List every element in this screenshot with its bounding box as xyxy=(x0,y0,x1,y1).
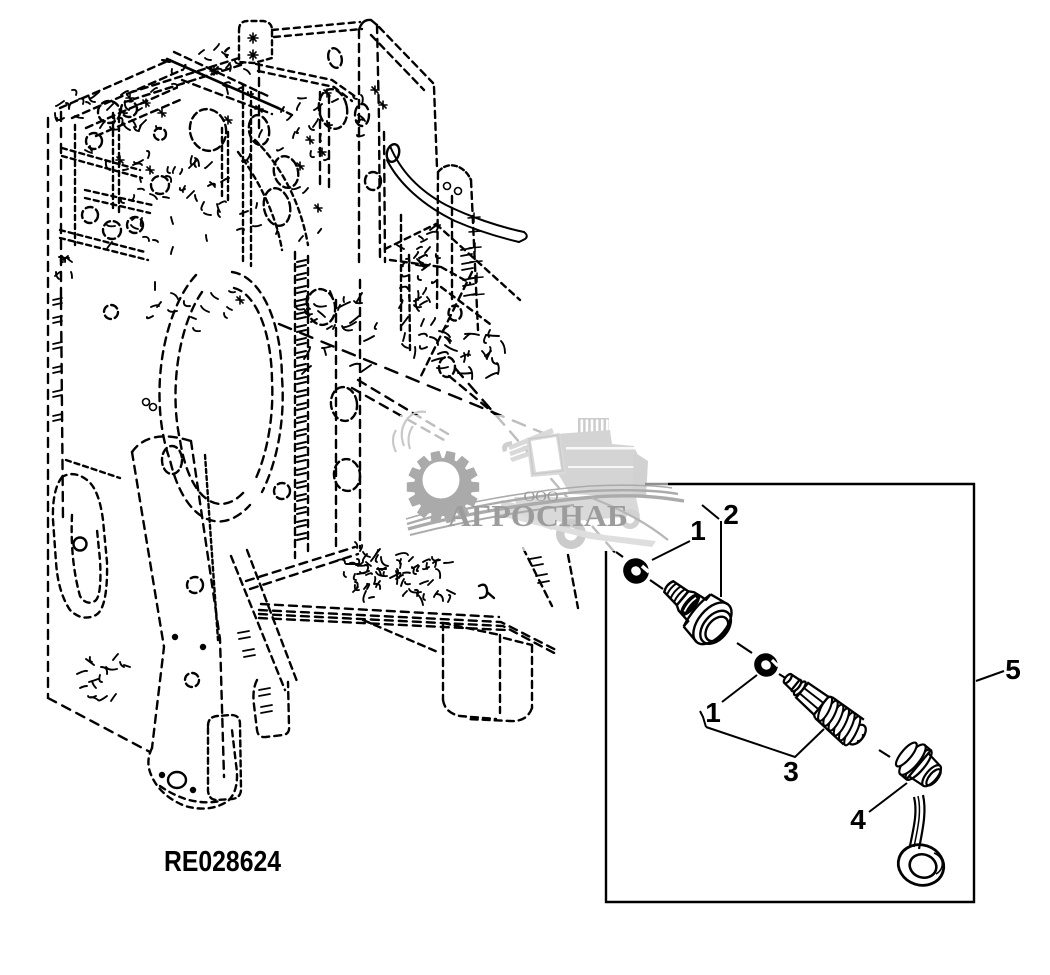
svg-text:4: 4 xyxy=(850,804,866,835)
svg-text:RE028624: RE028624 xyxy=(164,846,281,878)
svg-text:5: 5 xyxy=(1005,654,1021,685)
svg-text:2: 2 xyxy=(723,499,739,530)
svg-text:3: 3 xyxy=(783,756,799,787)
svg-text:1: 1 xyxy=(690,515,706,546)
svg-text:1: 1 xyxy=(705,697,721,728)
svg-text:АГРОСНАБ: АГРОСНАБ xyxy=(448,499,628,533)
